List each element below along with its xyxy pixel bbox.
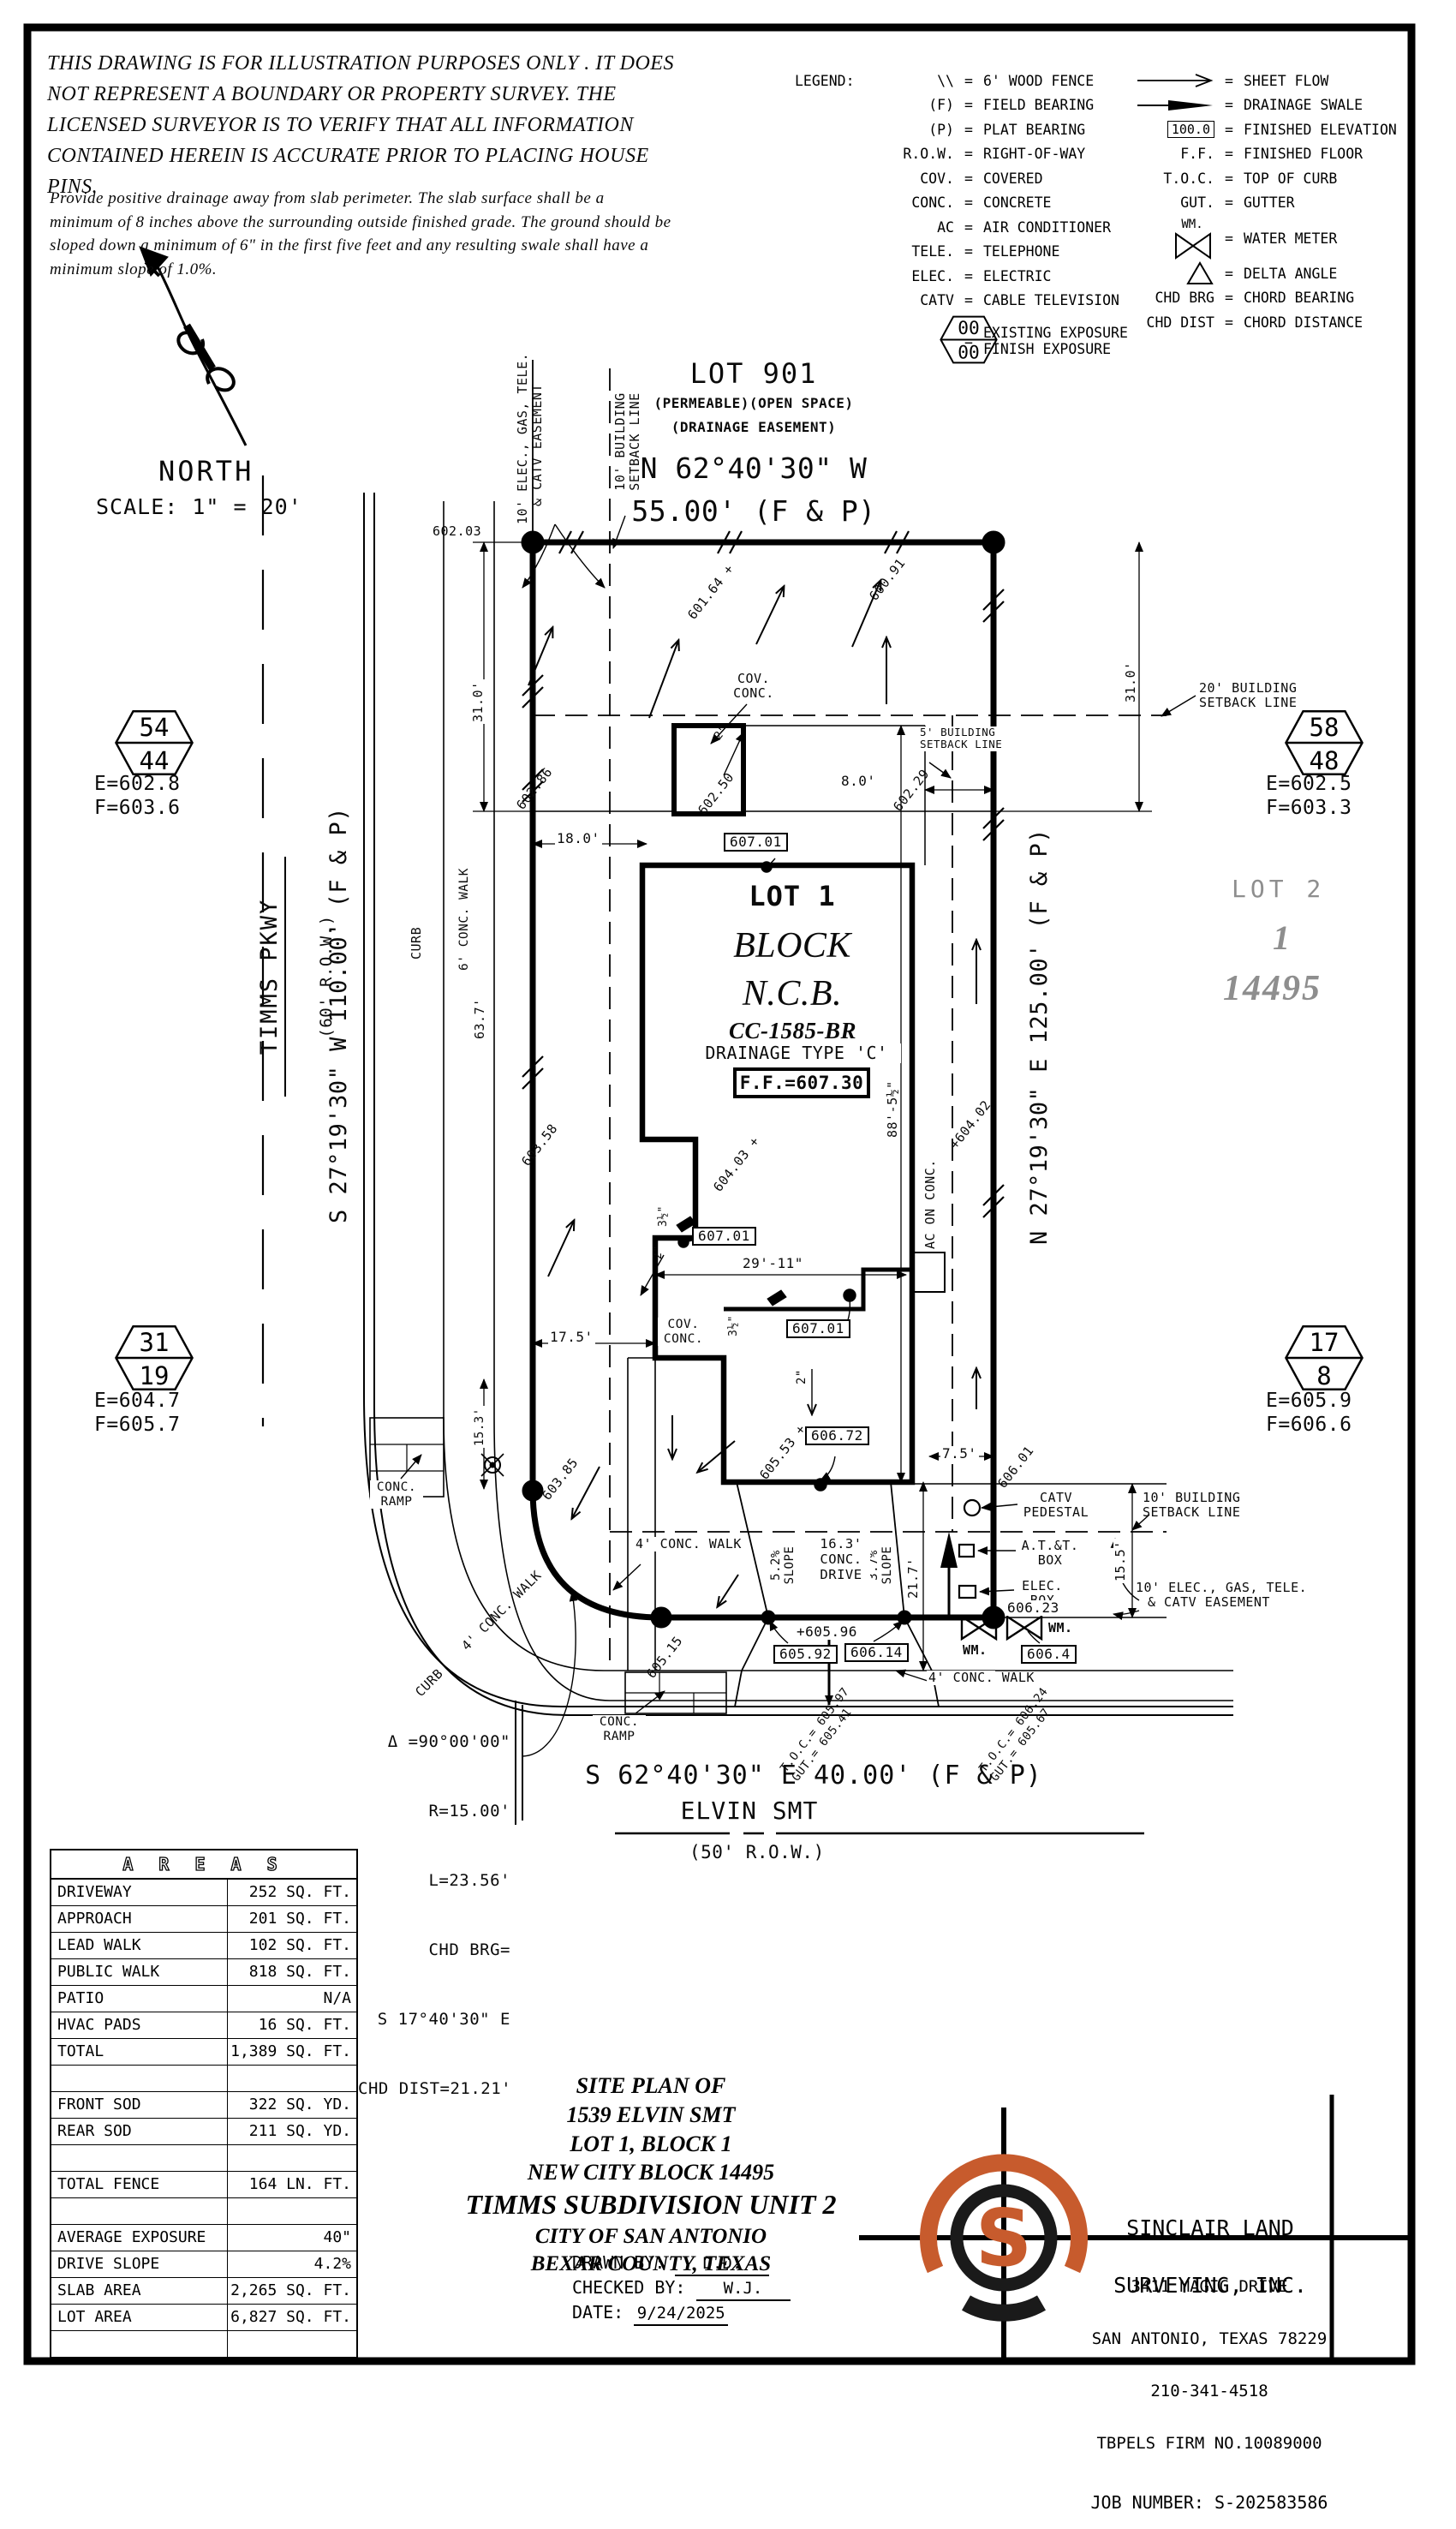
- ramp2-line1: CONC.: [593, 1715, 646, 1730]
- equals-sign: =: [1214, 146, 1244, 162]
- table-row: FRONT SOD322 SQ. YD.: [51, 2092, 356, 2119]
- wm-label-right: WM.: [1047, 1621, 1075, 1635]
- checked-by-label: CHECKED BY:: [572, 2277, 685, 2298]
- legend-label: FINISHED FLOOR: [1244, 146, 1363, 162]
- hex-top: 17: [1310, 1328, 1340, 1357]
- equals-sign: =: [954, 333, 983, 350]
- legend-row-row: R.O.W.=RIGHT-OF-WAY: [795, 142, 1128, 167]
- table-row: TOTAL1,389 SQ. FT.: [51, 2039, 356, 2066]
- building-setback-20-label: 20' BUILDINGSETBACK LINE: [1199, 681, 1297, 711]
- drawn-by-value: D.D.: [675, 2252, 769, 2276]
- water-meter-icon: WM.: [1129, 217, 1214, 260]
- legend-label: 6' WOOD FENCE: [983, 73, 1094, 89]
- legend-label: GUTTER: [1244, 194, 1295, 211]
- legend-sym: (P): [887, 122, 954, 138]
- street-row-south: (50' R.O.W.): [689, 1842, 809, 1862]
- finished-floor-box: F.F.=607.30: [733, 1067, 870, 1098]
- south-boundary-bearing: S 62°40'30" E 40.00' (F & P): [557, 1761, 1071, 1791]
- equals-sign: =: [954, 268, 983, 284]
- dim-8-0: 8.0': [839, 774, 878, 789]
- legend-label: WATER METER: [1244, 230, 1337, 247]
- table-row: [51, 2198, 356, 2225]
- finish-elev-19: F=605.7: [94, 1414, 180, 1436]
- legend-row-drainage-swale: = DRAINAGE SWALE: [1129, 93, 1397, 118]
- legend-label: TOP OF CURB: [1244, 170, 1337, 187]
- walk-6ft-label: 6' CONC. WALK: [457, 866, 472, 972]
- drive-line1: 16.3': [814, 1537, 868, 1552]
- legend-row-covered: COV.=COVERED: [795, 166, 1128, 191]
- dim-17-5: 17.5': [548, 1330, 595, 1345]
- hex-bottom: 48: [1310, 746, 1340, 775]
- row-label: DRIVE SLOPE: [51, 2251, 228, 2277]
- row-value: [228, 2145, 356, 2171]
- east-boundary-bearing: N 27°19'30" E 125.00' (F & P): [1026, 745, 1053, 1328]
- legend-sym: CONC.: [887, 194, 954, 211]
- easer-line2: & CATV EASEMENT: [1136, 1595, 1307, 1610]
- chord-bearing-label: CHD BRG=: [358, 1939, 510, 1962]
- legend-row-electric: ELEC.=ELECTRIC: [795, 264, 1128, 289]
- street-name-west: TIMMS PKWY: [256, 857, 286, 1097]
- equals-sign: =: [954, 219, 983, 236]
- covered-concrete-label-2: COV.CONC.: [658, 1318, 709, 1346]
- cov2-line2: CONC.: [659, 1332, 707, 1347]
- checked-by-row: CHECKED BY: W.J.: [572, 2276, 791, 2301]
- table-row: TOTAL FENCE164 LN. FT.: [51, 2172, 356, 2198]
- equals-sign: =: [954, 73, 983, 89]
- delta-angle-value: Δ =90°00'00": [358, 1731, 510, 1754]
- equals-sign: =: [954, 97, 983, 113]
- table-row: REAR SOD211 SQ. YD.: [51, 2119, 356, 2145]
- bsl5-line2: SETBACK LINE: [920, 738, 1002, 750]
- row-label: REAR SOD: [51, 2119, 228, 2144]
- elevation-box-606-14: 606.14: [844, 1643, 909, 1662]
- equals-sign: =: [954, 292, 983, 308]
- row-label: [51, 2198, 228, 2224]
- lot-2-label: LOT 2: [1232, 876, 1325, 903]
- row-label: TOTAL FENCE: [51, 2172, 228, 2197]
- easement-right-label: 10' ELEC., GAS, TELE.& CATV EASEMENT: [1136, 1581, 1307, 1611]
- wood-fence-icon: \\: [887, 73, 954, 89]
- legend-row-toc: T.O.C.=TOP OF CURB: [1129, 166, 1397, 191]
- table-row: AVERAGE EXPOSURE40": [51, 2225, 356, 2251]
- existing-elev-17: E=605.9: [1266, 1390, 1352, 1412]
- att-line2: BOX: [1016, 1553, 1084, 1568]
- row-label: DRIVEWAY: [51, 1880, 228, 1905]
- row-value: N/A: [228, 1986, 356, 2012]
- riser-3half-b: 3½": [728, 1315, 741, 1336]
- north-boundary-distance: 55.00' (F & P): [625, 495, 882, 528]
- equals-sign: =: [954, 194, 983, 211]
- hex-top: 54: [140, 713, 170, 742]
- scale-label: SCALE: 1" = 20': [96, 495, 302, 520]
- legend-row-ac: AC=AIR CONDITIONER: [795, 215, 1128, 240]
- bsl20-line1: 20' BUILDING: [1199, 681, 1297, 696]
- legend-label: FINISHED ELEVATION: [1244, 122, 1397, 138]
- legend-sym: (F): [887, 97, 954, 113]
- drop-2in-c: 2": [795, 1369, 809, 1384]
- spot-606-23: 606.23: [1005, 1600, 1061, 1616]
- legend-title: LEGEND:: [795, 73, 887, 89]
- row-value: [228, 2331, 356, 2357]
- existing-elev-54: E=602.8: [94, 773, 180, 795]
- drive-line3: DRIVE: [814, 1568, 868, 1583]
- drawn-by-row: DRAWN BY: D.D.: [572, 2251, 791, 2276]
- existing-elev-31: E=604.7: [94, 1390, 180, 1412]
- ramp2-line2: RAMP: [593, 1730, 646, 1744]
- lot-2-ncb-number: 14495: [1223, 968, 1322, 1009]
- areas-table-title: A R E A S: [51, 1850, 356, 1880]
- legend-row-finished-elevation: 100.0 = FINISHED ELEVATION: [1129, 117, 1397, 142]
- wm-label-left: WM.: [961, 1643, 989, 1658]
- west-boundary-bearing: S 27°19'30" W 110.00' (F & P): [325, 745, 352, 1285]
- drawn-by-label: DRAWN BY:: [572, 2252, 665, 2273]
- block-label: BLOCK: [724, 925, 861, 966]
- bsl20-line2: SETBACK LINE: [1199, 696, 1297, 710]
- bslr-line2: SETBACK LINE: [1143, 1505, 1240, 1520]
- legend-row-chd-brg: CHD BRG=CHORD BEARING: [1129, 286, 1397, 311]
- legend-sym: COV.: [887, 170, 954, 187]
- disclaimer-paragraph-2: Provide positive drainage away from slab…: [50, 187, 709, 281]
- equals-sign: =: [954, 243, 983, 260]
- row-label: SLAB AREA: [51, 2278, 228, 2304]
- catv-pedestal-label: CATVPEDESTAL: [1016, 1491, 1096, 1521]
- row-label: LEAD WALK: [51, 1933, 228, 1958]
- drive-line2: CONC.: [814, 1552, 868, 1568]
- legend-sym: AC: [887, 219, 954, 236]
- legend-row-sheet-flow: = SHEET FLOW: [1129, 69, 1397, 93]
- legend-label: SHEET FLOW: [1244, 73, 1328, 89]
- row-label: [51, 2145, 228, 2171]
- sheet-flow-icon: [1129, 73, 1214, 88]
- row-value: 6,827 SQ. FT.: [228, 2305, 356, 2330]
- dim-15-5: 15.5': [1113, 1539, 1128, 1583]
- row-value: 2,265 SQ. FT.: [228, 2278, 356, 2304]
- building-setback-left-label: 10' BUILDINGSETBACK LINE: [613, 362, 643, 521]
- legend-label: EXISTING EXPOSUREFINISH EXPOSURE: [983, 325, 1128, 357]
- covered-concrete-label-1: COV.CONC.: [726, 672, 781, 702]
- legend-row-delta: = DELTA ANGLE: [1129, 261, 1397, 286]
- finished-elevation-box: 100.0: [1167, 121, 1214, 138]
- hex-top: 58: [1310, 713, 1340, 742]
- legend-label: COVERED: [983, 170, 1043, 187]
- slope-3-7-label: 3.7%SLOPE: [867, 1535, 894, 1595]
- legend-row-wood-fence: LEGEND: \\ = 6' WOOD FENCE: [795, 69, 1128, 93]
- legend-row-field-bearing: (F)=FIELD BEARING: [795, 93, 1128, 118]
- hex-bottom: 19: [140, 1361, 170, 1390]
- legend-label: CHORD BEARING: [1244, 290, 1354, 306]
- row-value: 252 SQ. FT.: [228, 1880, 356, 1905]
- drainage-swale-icon: [1129, 98, 1214, 113]
- att-box-label: A.T.&T.BOX: [1016, 1539, 1084, 1569]
- legend-row-gutter: GUT.=GUTTER: [1129, 191, 1397, 216]
- curb-label-west: CURB: [409, 927, 424, 960]
- elevation-box-607-01-a: 607.01: [724, 833, 788, 852]
- legend-label: PLAT BEARING: [983, 122, 1085, 138]
- fence-marks: [522, 531, 1004, 1217]
- hex-bottom: 44: [140, 746, 170, 775]
- row-value: [228, 2066, 356, 2091]
- existing-elev-58: E=602.5: [1266, 773, 1352, 795]
- exposure-hex-17-8: 178: [1283, 1324, 1365, 1391]
- legend-label-line: FINISH EXPOSURE: [983, 341, 1128, 357]
- legend-row-catv: CATV=CABLE TELEVISION: [795, 289, 1128, 314]
- catv-line1: CATV: [1016, 1491, 1096, 1505]
- legend-label: AIR CONDITIONER: [983, 219, 1111, 236]
- legend-sym: R.O.W.: [887, 146, 954, 162]
- legend-label: TELEPHONE: [983, 243, 1059, 260]
- legend-row-plat-bearing: (P)=PLAT BEARING: [795, 117, 1128, 142]
- spot-602-03: 602.03: [433, 524, 481, 539]
- curve-data-block: Δ =90°00'00" R=15.00' L=23.56' CHD BRG= …: [358, 1684, 510, 2124]
- cov1-line1: COV.: [728, 672, 779, 686]
- easement-left-line2: & CATV EASEMENT: [530, 366, 545, 524]
- bsl-left-line2: SETBACK LINE: [628, 362, 642, 521]
- equals-sign: =: [1214, 170, 1244, 187]
- chord-bearing-value: S 17°40'30" E: [358, 2008, 510, 2031]
- street-name-south: ELVIN SMT: [677, 1797, 822, 1825]
- slope2-word: SLOPE: [880, 1535, 894, 1595]
- elevation-box-607-01-b: 607.01: [692, 1227, 756, 1246]
- row-label: LOT AREA: [51, 2305, 228, 2330]
- legend-sym: ELEC.: [887, 268, 954, 284]
- row-label: [51, 2066, 228, 2091]
- table-row: PUBLIC WALK818 SQ. FT.: [51, 1959, 356, 1986]
- ramp1-line1: CONC.: [370, 1480, 423, 1495]
- table-row: HVAC PADS16 SQ. FT.: [51, 2012, 356, 2039]
- firm-logo: S: [928, 2162, 1079, 2312]
- date-value: 9/24/2025: [634, 2302, 728, 2326]
- legend-label: DRAINAGE SWALE: [1244, 97, 1363, 113]
- legend-row-ff: F.F.=FINISHED FLOOR: [1129, 142, 1397, 167]
- radius-value: R=15.00': [358, 1800, 510, 1823]
- dim-15-3: 15.3': [473, 1406, 486, 1448]
- title-line-6: CITY OF SAN ANTONIO: [403, 2223, 899, 2251]
- legend-label: CONCRETE: [983, 194, 1051, 211]
- easement-left-line1: 10' ELEC., GAS, TELE.: [516, 366, 530, 524]
- building-setback-5-label: 5' BUILDINGSETBACK LINE: [918, 726, 1004, 751]
- cov2-line1: COV.: [659, 1318, 707, 1332]
- table-row: [51, 2066, 356, 2092]
- equals-sign: =: [1214, 194, 1244, 211]
- legend-sym: TELE.: [887, 243, 954, 260]
- elec-line1: ELEC.: [1012, 1579, 1072, 1593]
- areas-table: A R E A S DRIVEWAY252 SQ. FT. APPROACH20…: [50, 1849, 358, 2359]
- cc-number-label: CC-1585-BR: [718, 1018, 868, 1044]
- slope-5-2-label: 5.2%SLOPE: [769, 1535, 797, 1595]
- date-row: DATE: 9/24/2025: [572, 2301, 791, 2326]
- north-boundary-bearing: N 62°40'30" W: [625, 452, 882, 485]
- legend-row-water-meter: WM. = WATER METER: [1129, 215, 1397, 261]
- equals-sign: =: [1214, 122, 1244, 138]
- firm-name-line-1: SINCLAIR LAND: [1086, 2215, 1334, 2240]
- equals-sign: =: [1214, 73, 1244, 89]
- row-value: 16 SQ. FT.: [228, 2012, 356, 2038]
- dim-31-right: 31.0': [1124, 660, 1138, 704]
- finish-elev-44: F=603.6: [94, 797, 180, 819]
- site-plan-sheet: { "colors": {"accent": "#c75b2d", "scree…: [0, 0, 1456, 2399]
- dim-31-left: 31.0': [471, 679, 486, 724]
- lot-2-block-number: 1: [1273, 918, 1291, 958]
- firm-tbpels: TBPELS FIRM NO.10089000: [1081, 2434, 1338, 2454]
- row-value: 818 SQ. FT.: [228, 1959, 356, 1985]
- elevation-box-606-4: 606.4: [1021, 1645, 1077, 1664]
- table-row: PATION/A: [51, 1986, 356, 2012]
- finish-elev-8: F=606.6: [1266, 1414, 1352, 1436]
- easement-left-label: 10' ELEC., GAS, TELE.& CATV EASEMENT: [516, 366, 546, 524]
- equals-sign: =: [1214, 266, 1244, 282]
- table-row: SLAB AREA2,265 SQ. FT.: [51, 2278, 356, 2305]
- setback-easement-lines: [473, 360, 1167, 1671]
- north-label: NORTH: [158, 456, 254, 487]
- walk-4ft-label-bottom: 4' CONC. WALK: [927, 1671, 995, 1685]
- elevation-box-606-72: 606.72: [805, 1426, 869, 1445]
- signature-block: DRAWN BY: D.D. CHECKED BY: W.J. DATE: 9/…: [572, 2251, 791, 2326]
- row-value: 4.2%: [228, 2251, 356, 2277]
- wm-label: WM.: [1181, 218, 1202, 231]
- dim-88-5-half: 88'-5½": [886, 1079, 900, 1139]
- legend-label: RIGHT-OF-WAY: [983, 146, 1085, 162]
- row-label: PUBLIC WALK: [51, 1959, 228, 1985]
- elevation-box-607-01-c: 607.01: [786, 1319, 850, 1338]
- job-number: JOB NUMBER: S-202583586: [1081, 2493, 1338, 2513]
- row-value: [228, 2198, 356, 2224]
- row-value: 164 LN. FT.: [228, 2172, 356, 2197]
- exposure-hex-58-48: 5848: [1283, 709, 1365, 776]
- title-line-2: 1539 ELVIN SMT: [403, 2101, 899, 2130]
- equals-sign: =: [1214, 230, 1244, 247]
- legend-sym: CHD BRG: [1129, 290, 1214, 306]
- title-block: SITE PLAN OF 1539 ELVIN SMT LOT 1, BLOCK…: [403, 2072, 899, 2279]
- equals-sign: =: [1214, 314, 1244, 331]
- ncb-label: N.C.B.: [724, 973, 861, 1014]
- table-row: [51, 2331, 356, 2357]
- ac-on-conc-label: AC ON CONC.: [923, 1157, 938, 1251]
- dim-18-0: 18.0': [555, 831, 602, 846]
- disclaimer-paragraph-1: THIS DRAWING IS FOR ILLUSTRATION PURPOSE…: [47, 48, 698, 202]
- exposure-hex-31-19: 3119: [113, 1324, 195, 1391]
- spot-605-96: +605.96: [795, 1624, 859, 1640]
- legend-sym: GUT.: [1129, 194, 1214, 211]
- conc-drive-label: 16.3'CONC.DRIVE: [812, 1537, 870, 1582]
- dim-7-5: 7.5': [940, 1446, 979, 1462]
- walk-4ft-label-right: 4' CONC. WALK: [634, 1537, 702, 1551]
- legend-label: CHORD DISTANCE: [1244, 314, 1363, 331]
- row-label: TOTAL: [51, 2039, 228, 2065]
- legend-row-concrete: CONC.=CONCRETE: [795, 191, 1128, 216]
- row-value: 322 SQ. YD.: [228, 2092, 356, 2118]
- firm-address-1: 3411 MAGIC DRIVE: [1081, 2277, 1338, 2297]
- finish-elev-48: F=603.3: [1266, 797, 1352, 819]
- exposure-hexagon-icon: 0000: [887, 299, 954, 384]
- drainage-swale-arrow: [940, 1532, 958, 1615]
- hex-bottom: 8: [1316, 1361, 1331, 1390]
- drainage-type-label: DRAINAGE TYPE 'C': [692, 1043, 901, 1063]
- exposure-hex-54-44: 5444: [113, 709, 195, 776]
- conc-ramp-label-2: CONC.RAMP: [593, 1715, 646, 1743]
- row-label: [51, 2331, 228, 2357]
- equals-sign: =: [954, 122, 983, 138]
- table-row: DRIVEWAY252 SQ. FT.: [51, 1880, 356, 1906]
- bslr-line1: 10' BUILDING: [1143, 1491, 1240, 1505]
- row-label: PATIO: [51, 1986, 228, 2012]
- bsl-left-line1: 10' BUILDING: [613, 362, 628, 521]
- legend-right-column: = SHEET FLOW = DRAINAGE SWALE 100.0 = FI…: [1129, 69, 1397, 335]
- title-line-1: SITE PLAN OF: [403, 2072, 899, 2101]
- delta-angle-icon: [1129, 260, 1214, 286]
- logo-letter: S: [976, 2192, 1032, 2284]
- table-row: LEAD WALK102 SQ. FT.: [51, 1933, 356, 1959]
- bsl5-line1: 5' BUILDING: [920, 726, 1002, 738]
- legend-row-telephone: TELE.=TELEPHONE: [795, 240, 1128, 265]
- equals-sign: =: [1214, 97, 1244, 113]
- arc-length-value: L=23.56': [358, 1869, 510, 1892]
- row-label: AVERAGE EXPOSURE: [51, 2225, 228, 2251]
- row-label: APPROACH: [51, 1906, 228, 1932]
- table-row: LOT AREA6,827 SQ. FT.: [51, 2305, 356, 2331]
- legend-sym: F.F.: [1129, 146, 1214, 162]
- legend-label: CABLE TELEVISION: [983, 292, 1119, 308]
- row-value: 201 SQ. FT.: [228, 1906, 356, 1932]
- finished-elevation-icon: 100.0: [1129, 121, 1214, 138]
- cov1-line2: CONC.: [728, 686, 779, 701]
- row-value: 40": [228, 2225, 356, 2251]
- easer-line1: 10' ELEC., GAS, TELE.: [1136, 1581, 1307, 1595]
- slope1-word: SLOPE: [783, 1535, 797, 1595]
- legend-row-chd-dist: CHD DIST=CHORD DISTANCE: [1129, 310, 1397, 335]
- firm-address-block: 3411 MAGIC DRIVE SAN ANTONIO, TEXAS 7822…: [1081, 2245, 1338, 2529]
- table-row: DRIVE SLOPE4.2%: [51, 2251, 356, 2278]
- legend-label-line: EXISTING EXPOSURE: [983, 325, 1128, 341]
- drop-2in-b: 2": [653, 1245, 665, 1259]
- elevation-box-605-92: 605.92: [773, 1645, 838, 1664]
- legend-label: ELECTRIC: [983, 268, 1051, 284]
- lot-1-label: LOT 1: [728, 881, 856, 912]
- conc-ramp-label-1: CONC.RAMP: [370, 1480, 423, 1509]
- legend-sym: T.O.C.: [1129, 170, 1214, 187]
- title-line-5: TIMMS SUBDIVISION UNIT 2: [403, 2187, 899, 2223]
- building-setback-right-label: 10' BUILDINGSETBACK LINE: [1143, 1491, 1240, 1521]
- lot-901-permeable-note: (PERMEABLE)(OPEN SPACE): [634, 396, 874, 411]
- row-value: 211 SQ. YD.: [228, 2119, 356, 2144]
- date-label: DATE:: [572, 2302, 624, 2323]
- checked-by-value: W.J.: [696, 2277, 791, 2301]
- table-row: APPROACH201 SQ. FT.: [51, 1906, 356, 1933]
- equals-sign: =: [1214, 290, 1244, 306]
- lot-901-label: LOT 901: [642, 358, 865, 390]
- table-row: [51, 2145, 356, 2172]
- lot-901-drainage-note: (DRAINAGE EASEMENT): [634, 420, 874, 435]
- legend-label: FIELD BEARING: [983, 97, 1094, 113]
- row-value: 1,389 SQ. FT.: [228, 2039, 356, 2065]
- dim-63-7: 63.7': [473, 996, 487, 1041]
- slope1-pct: 5.2%: [769, 1535, 783, 1595]
- title-line-4: NEW CITY BLOCK 14495: [403, 2158, 899, 2187]
- legend-label: DELTA ANGLE: [1244, 266, 1337, 282]
- title-line-3: LOT 1, BLOCK 1: [403, 2130, 899, 2159]
- catv-line2: PEDESTAL: [1016, 1505, 1096, 1520]
- dim-29-11: 29'-11": [741, 1256, 805, 1271]
- row-label: HVAC PADS: [51, 2012, 228, 2038]
- hex-top: 31: [140, 1328, 170, 1357]
- att-line1: A.T.&T.: [1016, 1539, 1084, 1553]
- equals-sign: =: [954, 146, 983, 162]
- legend-sym: CHD DIST: [1129, 314, 1214, 331]
- equals-sign: =: [954, 170, 983, 187]
- row-value: 102 SQ. FT.: [228, 1933, 356, 1958]
- dim-21-7: 21.7': [906, 1556, 921, 1600]
- legend-left-column: LEGEND: \\ = 6' WOOD FENCE (F)=FIELD BEA…: [795, 69, 1128, 369]
- ramp1-line2: RAMP: [370, 1495, 423, 1510]
